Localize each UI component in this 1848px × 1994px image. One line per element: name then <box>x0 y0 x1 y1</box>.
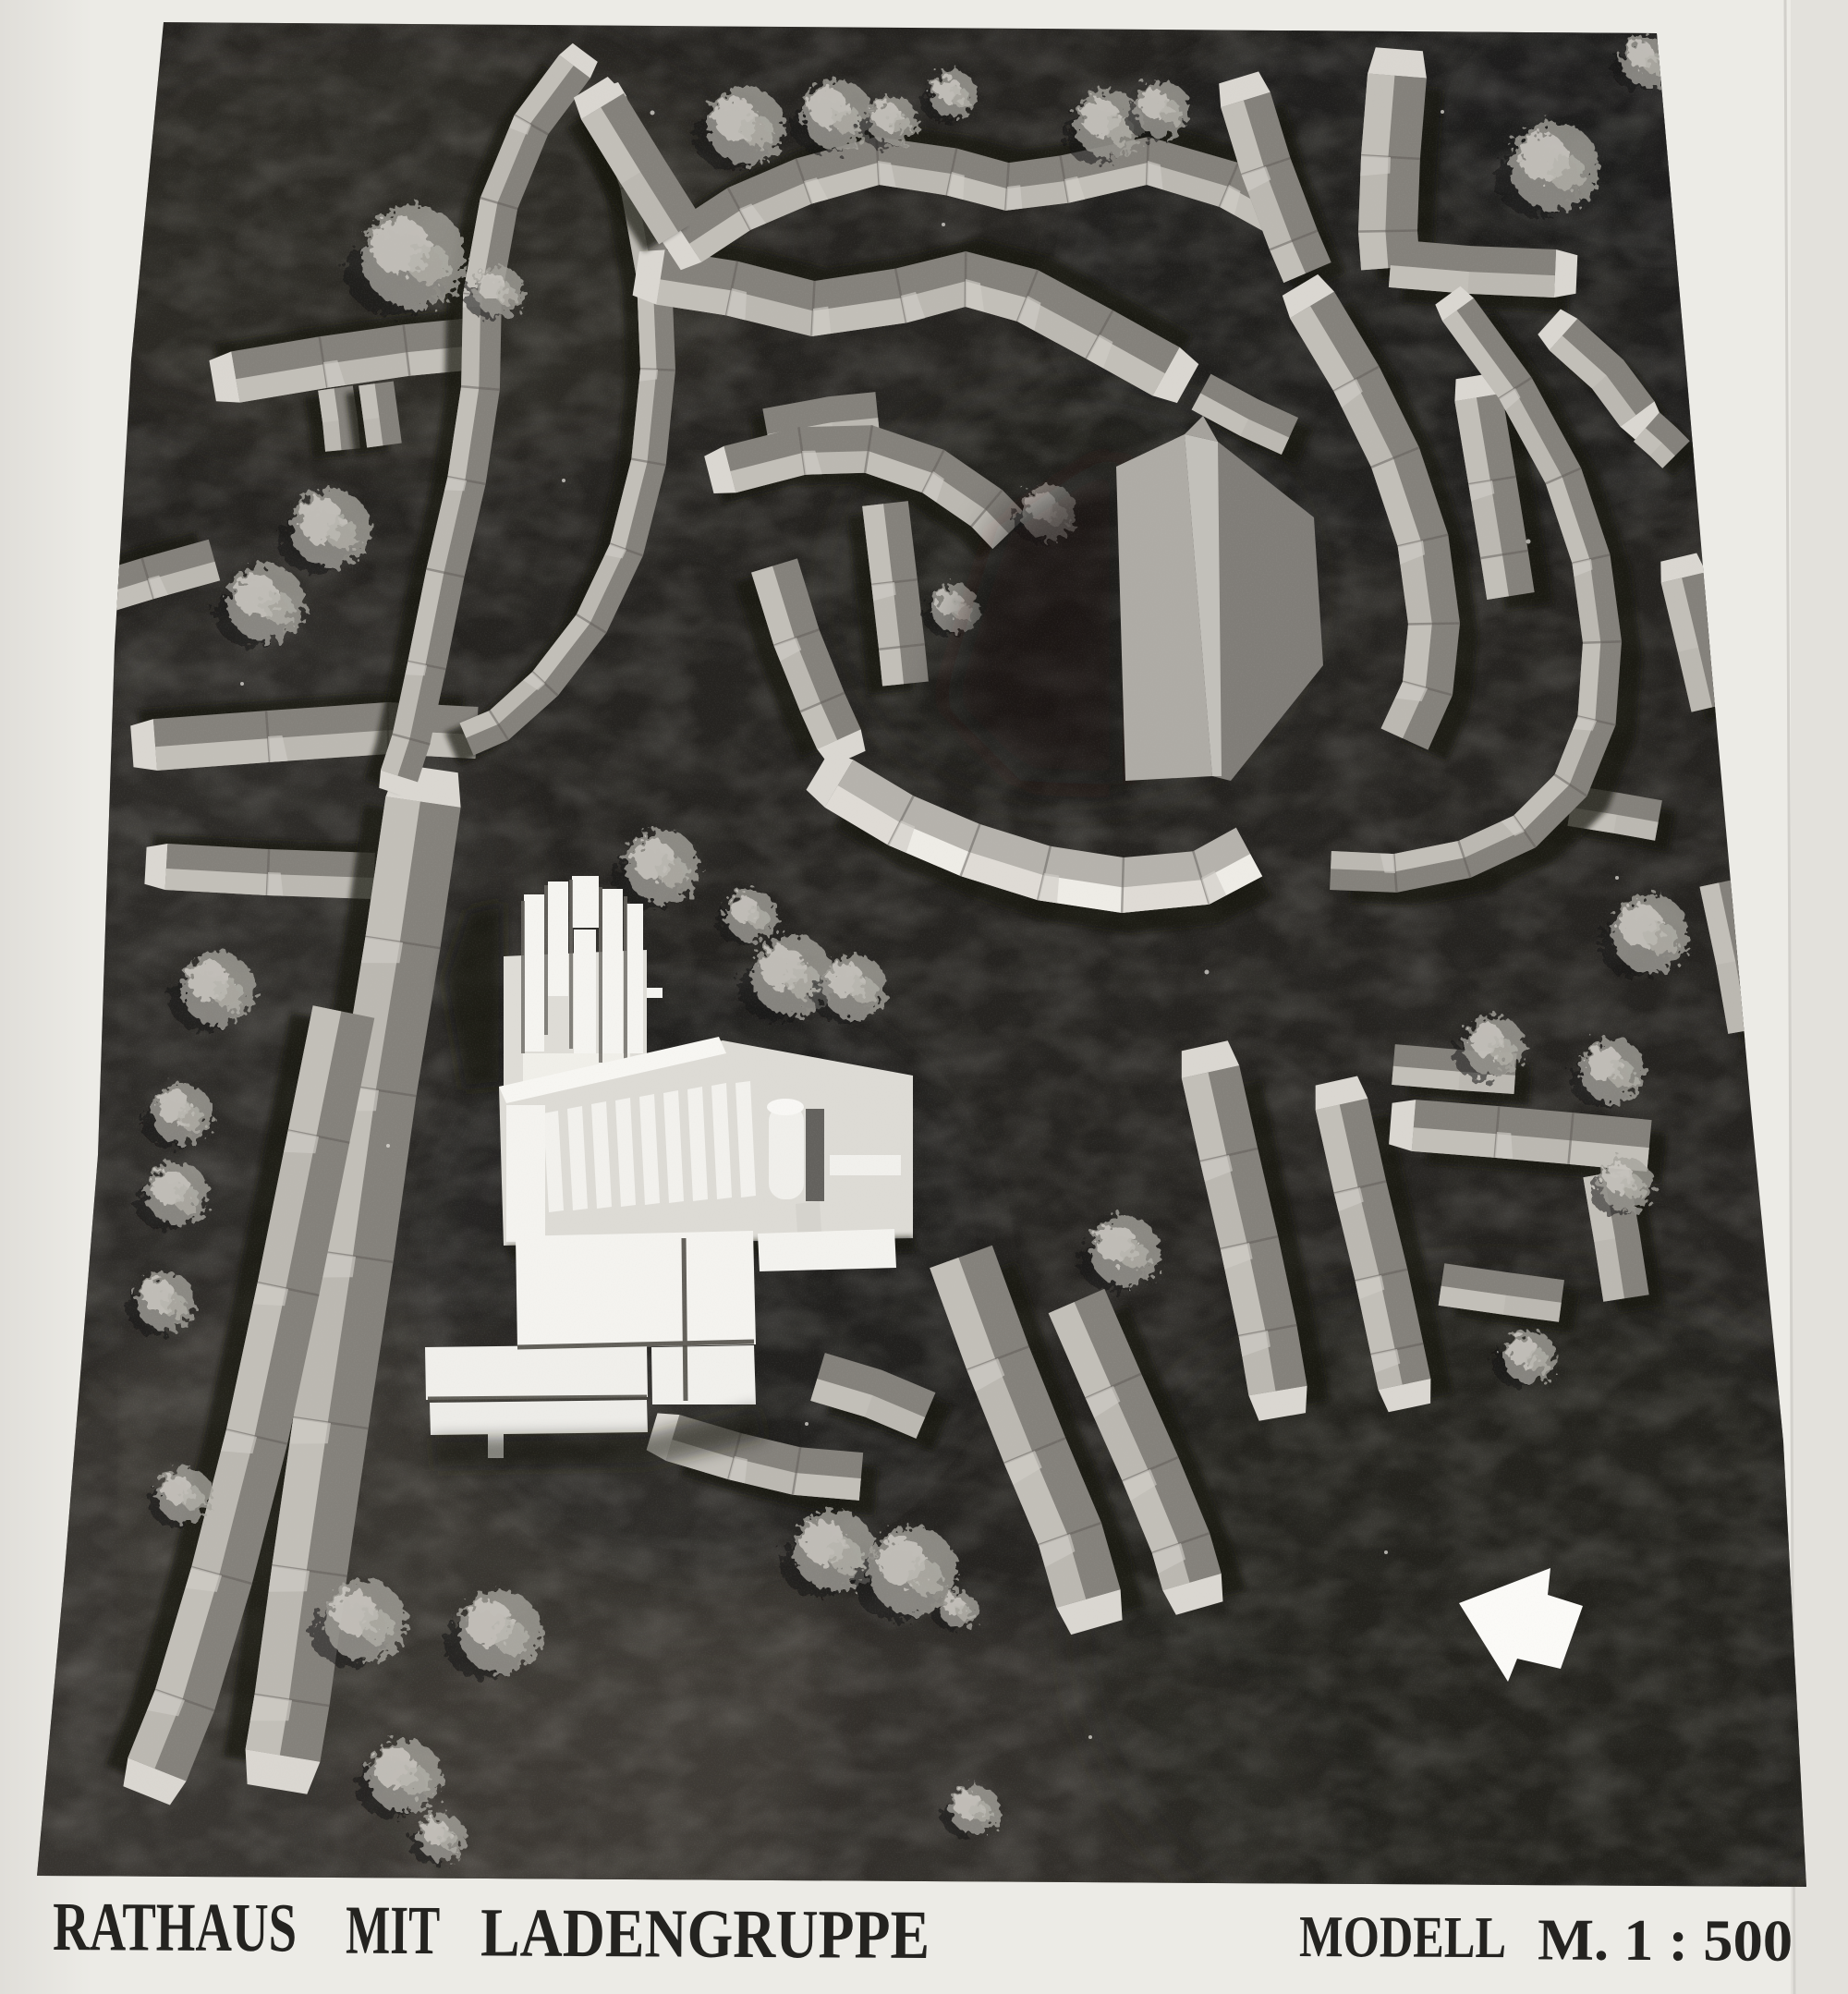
svg-text:MODELL: MODELL <box>1299 1903 1506 1970</box>
svg-text:M. 1 : 500: M. 1 : 500 <box>1538 1906 1793 1973</box>
svg-text:MIT: MIT <box>346 1892 440 1970</box>
svg-text:LADENGRUPPE: LADENGRUPPE <box>480 1894 930 1974</box>
svg-text:RATHAUS: RATHAUS <box>53 1889 297 1966</box>
